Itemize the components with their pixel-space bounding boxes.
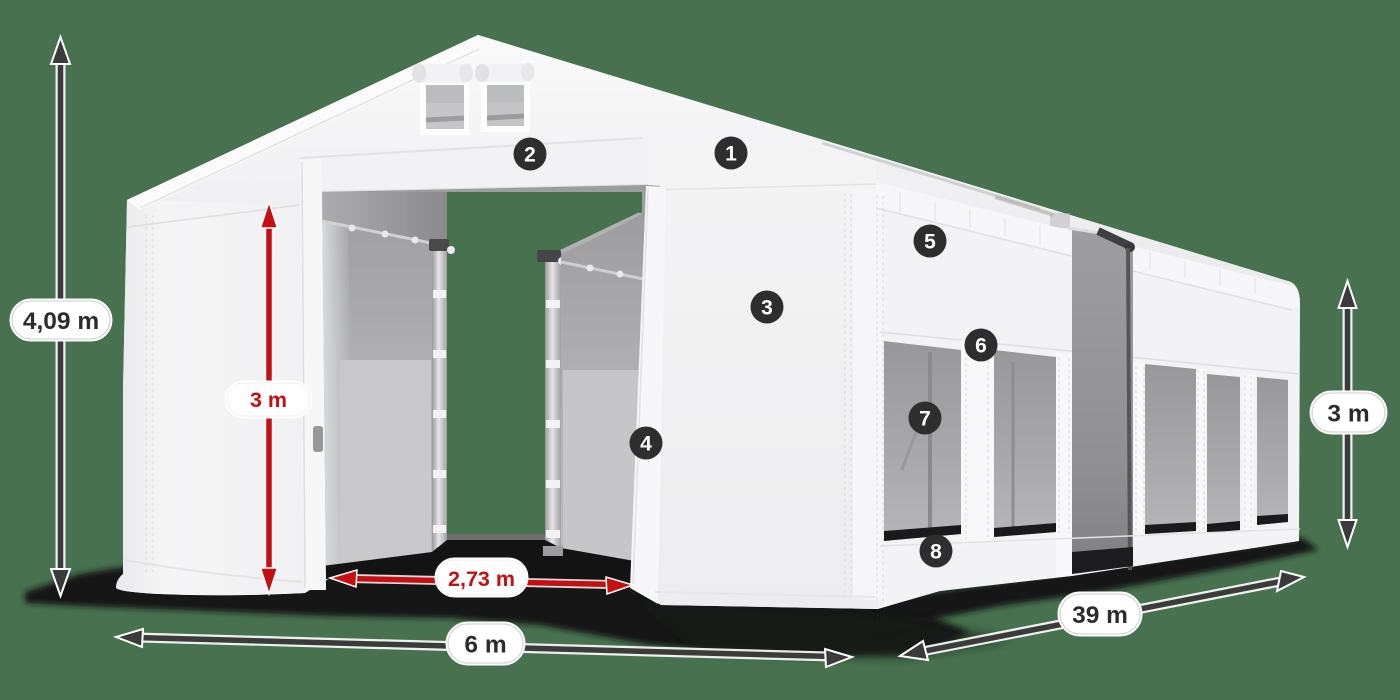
svg-text:3: 3	[761, 297, 773, 320]
svg-text:2: 2	[524, 144, 536, 167]
svg-text:4: 4	[640, 433, 652, 456]
svg-text:6 m: 6 m	[464, 632, 506, 659]
svg-text:8: 8	[930, 541, 942, 564]
svg-text:5: 5	[924, 231, 936, 254]
svg-text:2,73 m: 2,73 m	[448, 567, 515, 591]
svg-text:4,09 m: 4,09 m	[23, 308, 99, 335]
svg-text:39 m: 39 m	[1072, 602, 1128, 629]
svg-text:3 m: 3 m	[1327, 401, 1369, 428]
svg-text:3 m: 3 m	[250, 388, 287, 412]
svg-text:6: 6	[975, 335, 987, 358]
svg-text:1: 1	[725, 143, 737, 166]
svg-text:7: 7	[919, 408, 931, 431]
